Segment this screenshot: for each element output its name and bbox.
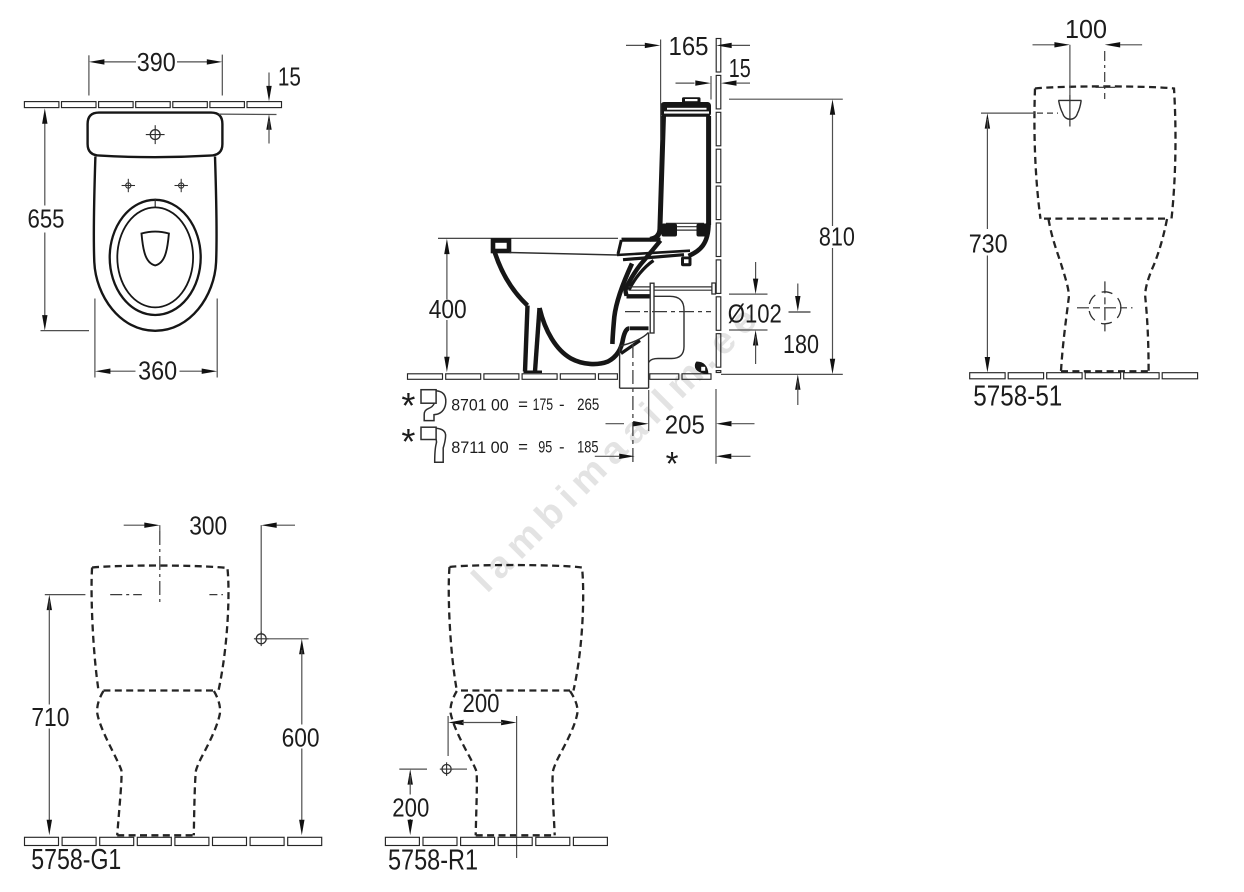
- svg-text:-: -: [559, 395, 565, 414]
- svg-text:265: 265: [577, 395, 599, 414]
- svg-text:165: 165: [669, 31, 709, 61]
- svg-text:*: *: [666, 445, 679, 482]
- svg-text:95: 95: [538, 437, 552, 456]
- svg-text:175: 175: [533, 395, 554, 414]
- svg-text:-: -: [559, 437, 565, 456]
- svg-text:8711 00: 8711 00: [451, 438, 509, 457]
- svg-text:180: 180: [783, 329, 819, 359]
- svg-text:710: 710: [31, 702, 69, 732]
- svg-text:5758-G1: 5758-G1: [31, 844, 121, 876]
- svg-text:200: 200: [463, 688, 500, 718]
- svg-text:360: 360: [138, 355, 177, 385]
- svg-text:5758-R1: 5758-R1: [388, 845, 478, 877]
- svg-text:*: *: [401, 421, 415, 462]
- svg-text:600: 600: [282, 723, 320, 753]
- svg-text:205: 205: [665, 409, 705, 439]
- svg-text:300: 300: [189, 511, 227, 541]
- svg-text:390: 390: [137, 47, 176, 77]
- svg-text:100: 100: [1065, 14, 1107, 44]
- svg-text:5758-51: 5758-51: [973, 381, 1062, 413]
- svg-text:15: 15: [278, 61, 301, 91]
- svg-text:400: 400: [429, 294, 467, 324]
- svg-text:730: 730: [969, 229, 1008, 259]
- svg-text:=: =: [518, 395, 528, 414]
- svg-text:8701 00: 8701 00: [451, 395, 509, 414]
- svg-text:15: 15: [729, 53, 751, 83]
- svg-text:655: 655: [28, 203, 65, 233]
- svg-text:185: 185: [577, 437, 598, 456]
- svg-text:200: 200: [392, 793, 429, 823]
- svg-text:810: 810: [819, 222, 855, 252]
- svg-text:Ø102: Ø102: [728, 298, 782, 328]
- svg-text:=: =: [518, 437, 528, 456]
